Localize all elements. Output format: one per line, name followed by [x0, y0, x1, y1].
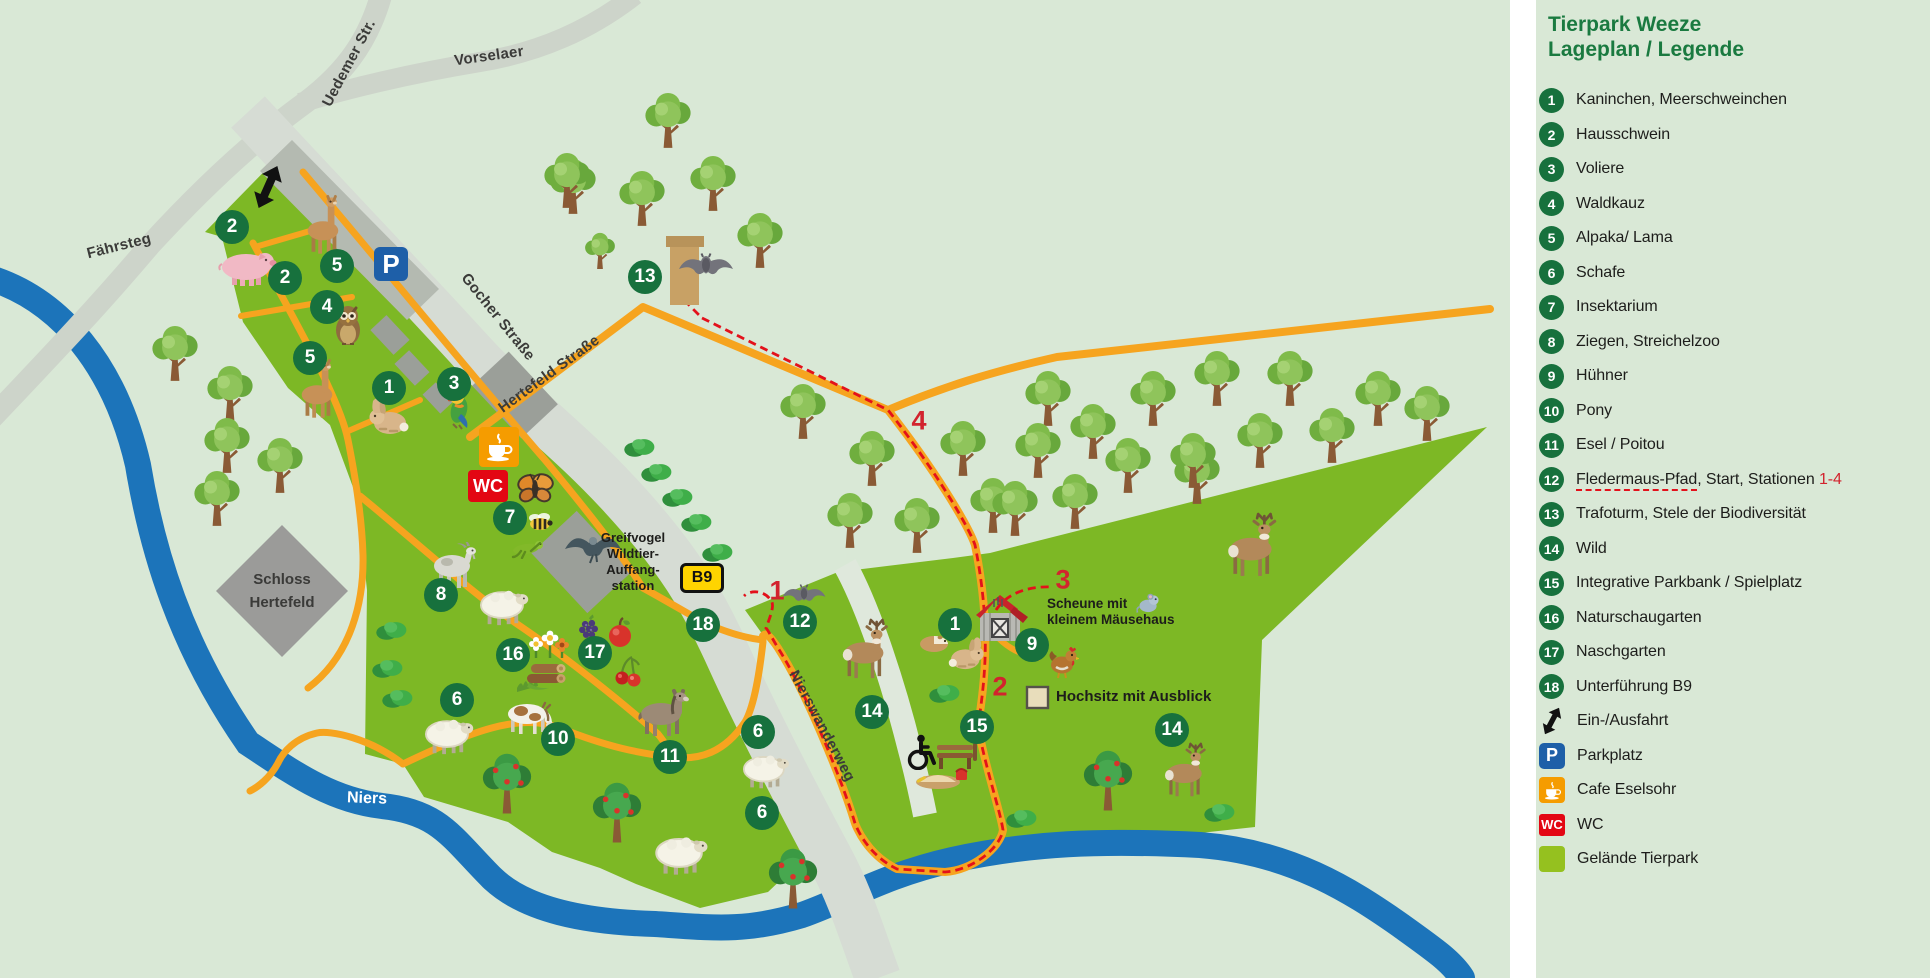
- legend-item-18: 18Unterführung B9: [1539, 672, 1692, 702]
- greifvogel-line3: Auffang-: [601, 562, 665, 578]
- scheune-label: Scheune mit kleinem Mäusehaus: [1047, 596, 1175, 628]
- legend-symbol-label: WC: [1577, 816, 1603, 834]
- cafe-icon: [1539, 777, 1565, 803]
- legend-symbol-label: Cafe Eselsohr: [1577, 781, 1676, 799]
- map-marker-6: 6: [440, 683, 474, 717]
- tree-icon: [1070, 404, 1115, 459]
- wc-cell: WC: [1539, 814, 1565, 836]
- legend-item-4: 4Waldkauz: [1539, 189, 1645, 219]
- cafe-cell: [1539, 777, 1565, 803]
- area-cell: [1539, 846, 1565, 872]
- tree-icon: [1194, 351, 1239, 406]
- map-marker-6: 6: [741, 715, 775, 749]
- bush-icon: [681, 514, 711, 532]
- legend-item-13: 13Trafoturm, Stele der Biodiversität: [1539, 499, 1806, 529]
- legend-item-number: 12: [1539, 467, 1564, 492]
- tree-icon: [1025, 371, 1070, 426]
- legend-item-number: 14: [1539, 536, 1564, 561]
- bush-icon: [702, 544, 732, 562]
- legend-item-number: 2: [1539, 122, 1564, 147]
- wc-badge: WC: [468, 470, 508, 502]
- map-marker-15: 15: [960, 710, 994, 744]
- legend-item-8: 8Ziegen, Streichelzoo: [1539, 327, 1720, 357]
- greifvogel-line2: Wildtier-: [601, 546, 665, 562]
- legend-item-11: 11Esel / Poitou: [1539, 430, 1665, 460]
- legend-item-label: Wild: [1576, 540, 1607, 558]
- legend-symbol-parking: PParkplatz: [1539, 741, 1643, 771]
- legend-item-label: Naschgarten: [1576, 643, 1666, 661]
- legend-item-label: Insektarium: [1576, 298, 1658, 316]
- map-marker-6: 6: [745, 796, 779, 830]
- bush-icon: [624, 439, 654, 457]
- legend-item-2: 2Hausschwein: [1539, 120, 1670, 150]
- legend-item-label: Schafe: [1576, 264, 1625, 282]
- legend-item-1: 1Kaninchen, Meerschweinchen: [1539, 85, 1787, 115]
- legend-item-12: 12Fledermaus-Pfad, Start, Stationen 1-4: [1539, 465, 1842, 495]
- tree-icon: [1267, 351, 1312, 406]
- legend-title-line2: Lageplan / Legende: [1548, 37, 1744, 62]
- legend-symbol-cafe: Cafe Eselsohr: [1539, 775, 1676, 805]
- legend-item-16: 16Naturschaugarten: [1539, 603, 1702, 633]
- legend-symbol-entry-arrow: Ein-/Ausfahrt: [1539, 706, 1668, 736]
- legend-item-label: Trafoturm, Stele der Biodiversität: [1576, 505, 1806, 523]
- tree-icon: [1404, 386, 1449, 441]
- tree-icon: [645, 93, 690, 148]
- route-station-4: 4: [911, 406, 926, 437]
- legend-title-line1: Tierpark Weeze: [1548, 12, 1744, 37]
- river-label-niers: Niers: [347, 789, 388, 808]
- tree-icon: [1105, 438, 1150, 493]
- route-station-1: 1: [769, 576, 784, 607]
- fledermaus-pfad-underlined: Fledermaus-Pfad: [1576, 471, 1697, 491]
- legend-item-label: Naturschaugarten: [1576, 609, 1702, 627]
- legend-symbol-label: Parkplatz: [1577, 747, 1643, 765]
- legend-item-6: 6Schafe: [1539, 258, 1625, 288]
- legend-item-label: Waldkauz: [1576, 195, 1645, 213]
- greifvogel-label: Greifvogel Wildtier- Auffang- station: [601, 530, 665, 594]
- map-marker-5: 5: [320, 249, 354, 283]
- map-marker-1: 1: [938, 608, 972, 642]
- greifvogel-line1: Greifvogel: [601, 530, 665, 546]
- tree-icon: [690, 156, 735, 211]
- legend-item-number: 5: [1539, 226, 1564, 251]
- legend-item-label: Integrative Parkbank / Spielplatz: [1576, 574, 1802, 592]
- legend-item-number: 3: [1539, 157, 1564, 182]
- tree-icon: [780, 384, 825, 439]
- legend-item-number: 4: [1539, 191, 1564, 216]
- legend-item-label: Voliere: [1576, 160, 1624, 178]
- legend-item-number: 7: [1539, 295, 1564, 320]
- tree-icon: [1015, 423, 1060, 478]
- scheune-line2: kleinem Mäusehaus: [1047, 612, 1175, 628]
- map-marker-9: 9: [1015, 628, 1049, 662]
- legend-item-7: 7Insektarium: [1539, 292, 1658, 322]
- map-marker-8: 8: [424, 578, 458, 612]
- coffee-cup-icon: [484, 432, 514, 462]
- stations-range-red: 1-4: [1819, 471, 1842, 488]
- legend-panel: Tierpark Weeze Lageplan / Legende 1Kanin…: [1536, 0, 1930, 978]
- legend-item-5: 5Alpaka/ Lama: [1539, 223, 1673, 253]
- tree-icon: [194, 471, 239, 526]
- map-marker-11: 11: [653, 740, 687, 774]
- tree-icon: [849, 431, 894, 486]
- tree-icon: [204, 418, 249, 473]
- legend-item-label-middle: , Start, Stationen: [1697, 471, 1819, 488]
- park-area-swatch: [1539, 846, 1565, 872]
- trafoturm: [666, 236, 704, 247]
- greifvogel-line4: station: [601, 578, 665, 594]
- legend-item-number: 16: [1539, 605, 1564, 630]
- legend-item-number: 18: [1539, 674, 1564, 699]
- legend-item-label: Hausschwein: [1576, 126, 1670, 144]
- legend-symbol-area: Gelände Tierpark: [1539, 844, 1698, 874]
- tree-icon: [152, 326, 197, 381]
- map-marker-16: 16: [496, 638, 530, 672]
- tree-icon: [737, 213, 782, 268]
- entry-exit-arrow-icon: [1537, 704, 1567, 739]
- map-marker-17: 17: [578, 636, 612, 670]
- legend-item-number: 13: [1539, 502, 1564, 527]
- tree-icon: [1130, 371, 1175, 426]
- parking-badge: P: [374, 247, 408, 281]
- panel-divider: [1510, 0, 1536, 978]
- legend-item-15: 15Integrative Parkbank / Spielplatz: [1539, 568, 1802, 598]
- tree-icon: [257, 438, 302, 493]
- legend-item-number: 8: [1539, 329, 1564, 354]
- schloss-label: Schloss Hertefeld: [249, 568, 314, 614]
- map-marker-2: 2: [268, 261, 302, 295]
- legend-item-17: 17Naschgarten: [1539, 637, 1666, 667]
- tree-icon: [207, 366, 252, 421]
- legend-item-label: Alpaka/ Lama: [1576, 229, 1673, 247]
- map-marker-14: 14: [855, 695, 889, 729]
- parking-badge: P: [1539, 743, 1565, 769]
- hochsitz-square: [1027, 687, 1048, 708]
- map-marker-10: 10: [541, 722, 575, 756]
- legend-item-label: Unterführung B9: [1576, 678, 1692, 696]
- map-marker-1: 1: [372, 371, 406, 405]
- legend-item-14: 14Wild: [1539, 534, 1607, 564]
- parking-cell: P: [1539, 743, 1565, 769]
- map-marker-18: 18: [686, 608, 720, 642]
- legend-item-10: 10Pony: [1539, 396, 1612, 426]
- tree-icon: [585, 233, 615, 269]
- tree-icon: [1237, 413, 1282, 468]
- tree-icon: [619, 171, 664, 226]
- legend-item-label: Pony: [1576, 402, 1612, 420]
- cafe-badge: [479, 427, 519, 467]
- route-station-3: 3: [1055, 565, 1070, 596]
- tree-icon: [894, 498, 939, 553]
- b9-route-badge: B9: [680, 563, 724, 593]
- legend-item-number: 11: [1539, 433, 1564, 458]
- route-station-2: 2: [992, 672, 1007, 703]
- tree-icon: [1309, 408, 1354, 463]
- legend-item-9: 9Hühner: [1539, 361, 1628, 391]
- hochsitz-label: Hochsitz mit Ausblick: [1056, 689, 1211, 705]
- map-marker-14: 14: [1155, 713, 1189, 747]
- map-marker-2: 2: [215, 210, 249, 244]
- legend-item-label: Hühner: [1576, 367, 1628, 385]
- bush-icon: [641, 464, 671, 482]
- tree-icon: [1355, 371, 1400, 426]
- legend-item-label: Kaninchen, Meerschweinchen: [1576, 91, 1787, 109]
- legend-item-number: 9: [1539, 364, 1564, 389]
- entry-arrow-cell: [1539, 706, 1565, 736]
- legend-symbol-label: Ein-/Ausfahrt: [1577, 712, 1668, 730]
- map-marker-12: 12: [783, 605, 817, 639]
- tree-icon: [827, 493, 872, 548]
- tierpark-map-page: Uedemer Str. Vorselaer Fährsteg Gocher S…: [0, 0, 1930, 978]
- map-marker-7: 7: [493, 501, 527, 535]
- legend-item-number: 1: [1539, 88, 1564, 113]
- legend-item-number: 6: [1539, 260, 1564, 285]
- wc-badge: WC: [1539, 814, 1565, 836]
- legend-symbol-label: Gelände Tierpark: [1577, 850, 1698, 868]
- legend-item-3: 3Voliere: [1539, 154, 1624, 184]
- legend-item-label: Ziegen, Streichelzoo: [1576, 333, 1720, 351]
- legend-item-number: 17: [1539, 640, 1564, 665]
- legend-item-label: Fledermaus-Pfad, Start, Stationen 1-4: [1576, 471, 1842, 489]
- map-marker-4: 4: [310, 290, 344, 324]
- legend-item-number: 15: [1539, 571, 1564, 596]
- map-marker-5: 5: [293, 341, 327, 375]
- trafoturm: [670, 247, 699, 305]
- schloss-line1: Schloss: [249, 568, 314, 591]
- tree-icon: [940, 421, 985, 476]
- schloss-line2: Hertefeld: [249, 591, 314, 614]
- tree-icon: [544, 153, 589, 208]
- map-marker-13: 13: [628, 260, 662, 294]
- scheune-line1: Scheune mit: [1047, 596, 1175, 612]
- legend-title: Tierpark Weeze Lageplan / Legende: [1548, 12, 1744, 62]
- bush-icon: [662, 489, 692, 507]
- map-marker-3: 3: [437, 367, 471, 401]
- legend-symbol-wc: WCWC: [1539, 810, 1603, 840]
- legend-item-label: Esel / Poitou: [1576, 436, 1665, 454]
- tree-icon: [1052, 474, 1097, 529]
- legend-item-number: 10: [1539, 398, 1564, 423]
